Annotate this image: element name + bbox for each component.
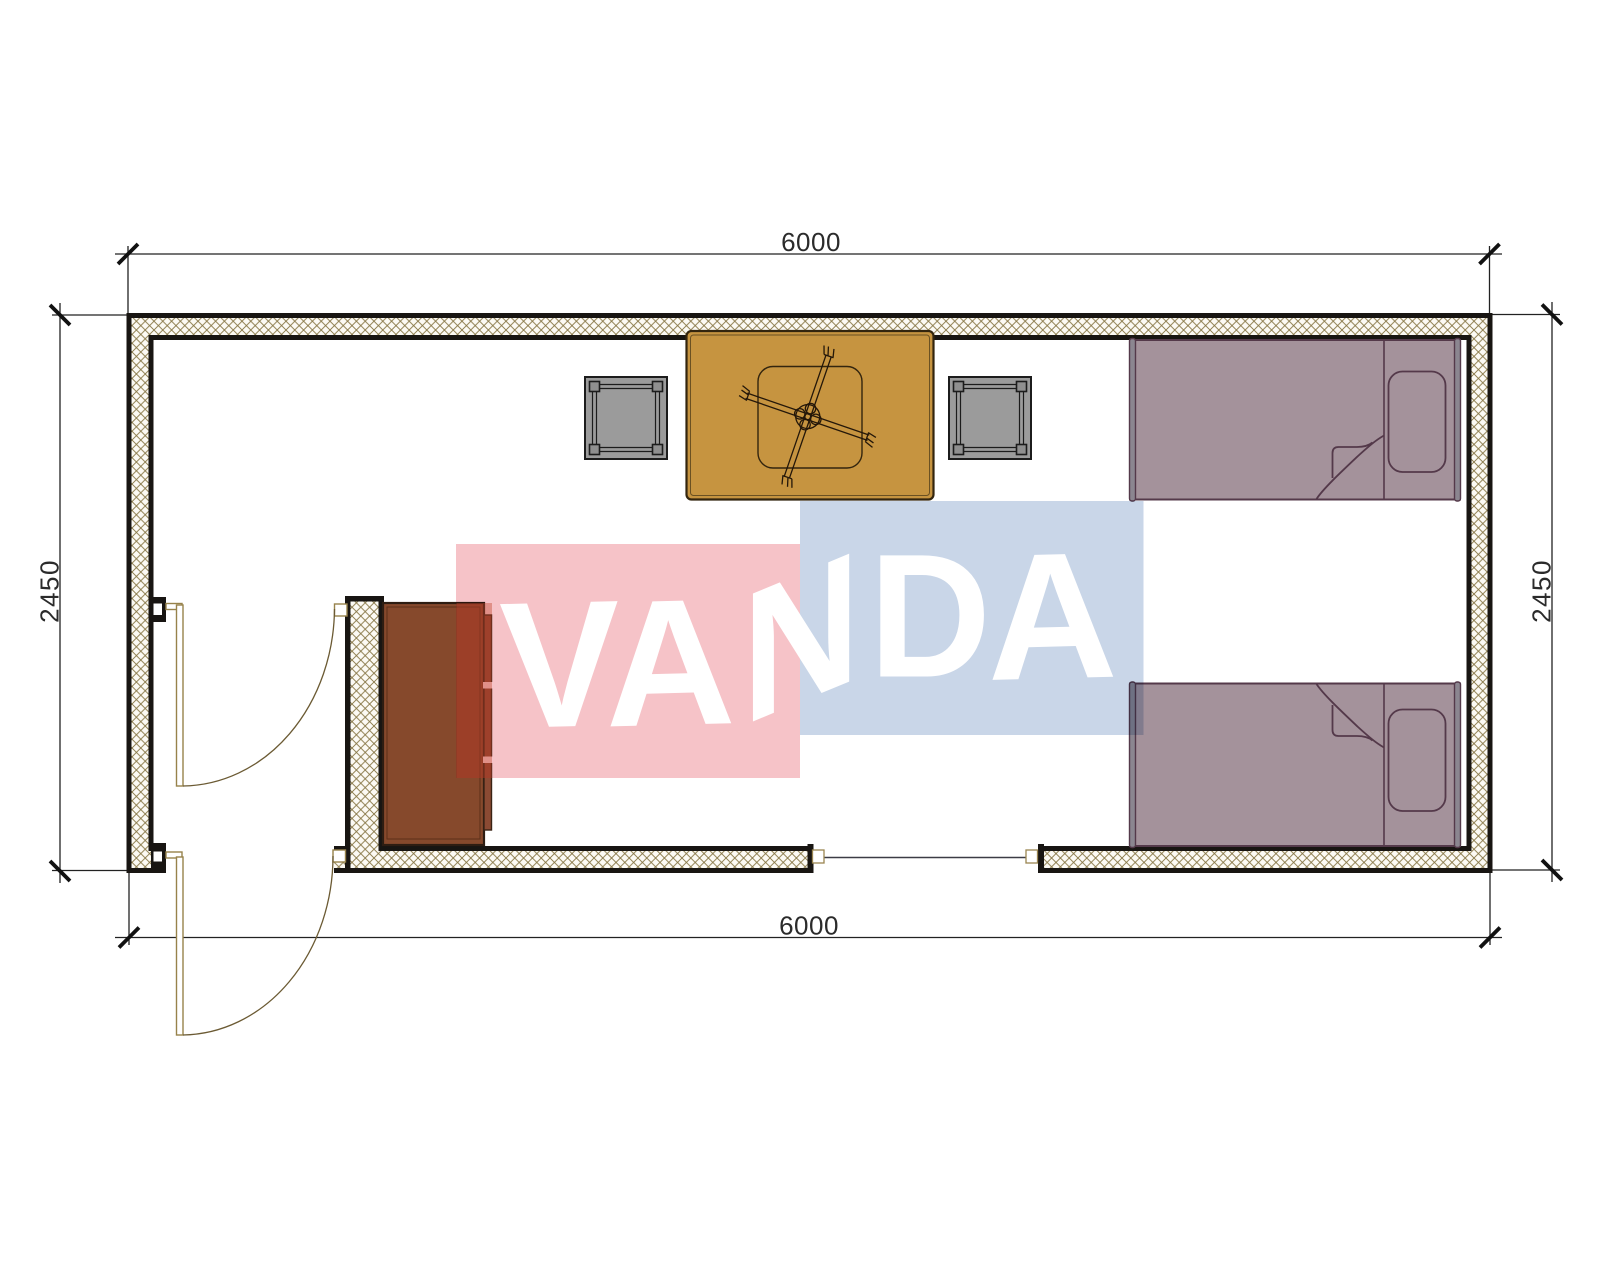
svg-text:6000: 6000 bbox=[781, 227, 841, 257]
svg-text:2450: 2450 bbox=[1527, 559, 1557, 623]
svg-text:A: A bbox=[602, 561, 737, 765]
svg-text:D: D bbox=[869, 517, 991, 714]
svg-text:2450: 2450 bbox=[35, 559, 65, 623]
svg-text:A: A bbox=[984, 515, 1119, 719]
svg-text:6000: 6000 bbox=[779, 911, 839, 941]
